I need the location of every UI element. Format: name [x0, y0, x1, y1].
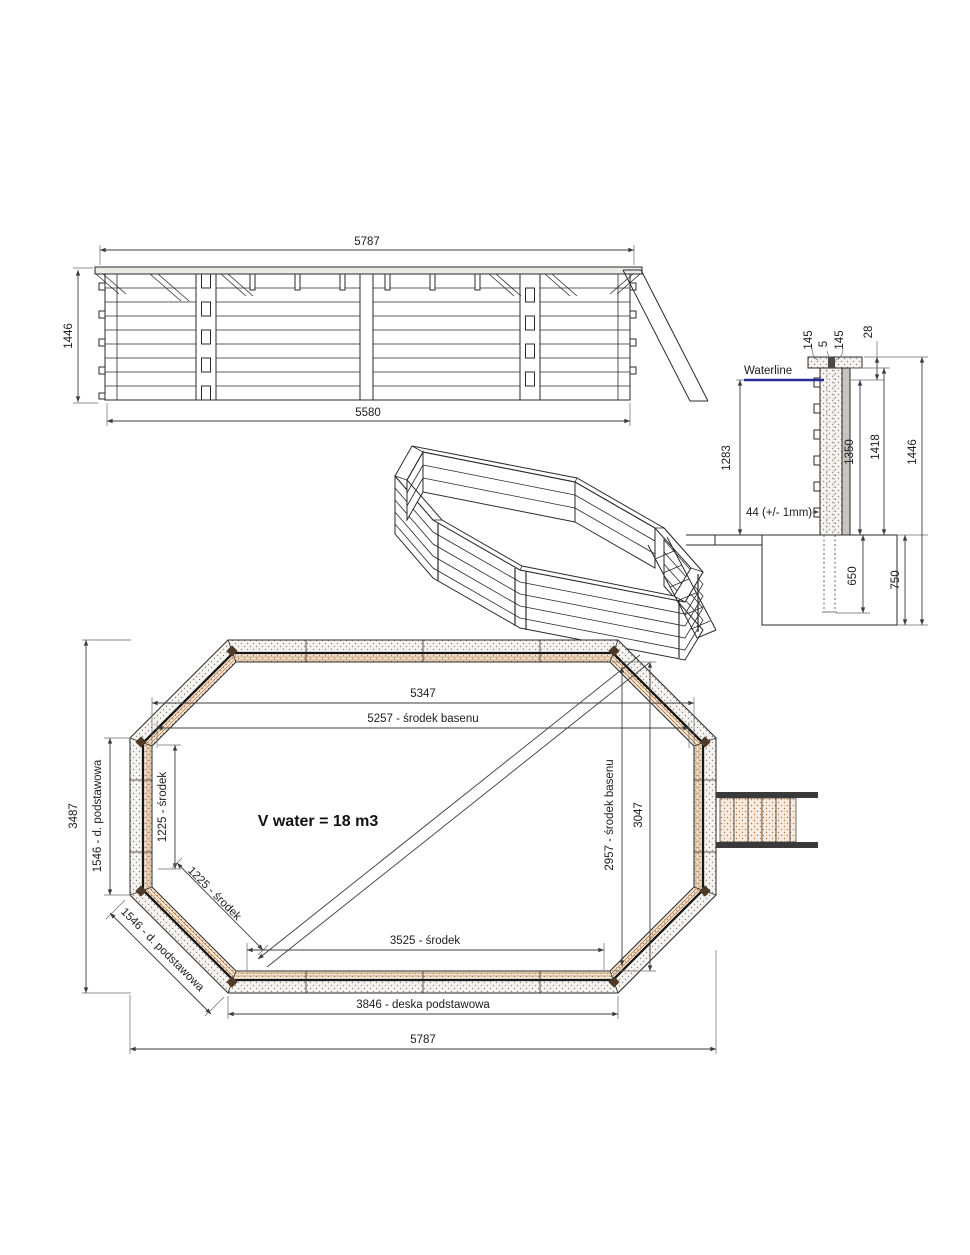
plan-view: V water = 18 m3 5347 5257 - środek basen…: [68, 640, 818, 1054]
dim-5347: 5347: [410, 688, 436, 700]
plan-ladder: [716, 792, 818, 848]
dim-2957: 2957 - środek basenu: [604, 759, 616, 870]
perspective-view: [395, 446, 716, 660]
dim-3487: 3487: [68, 803, 80, 829]
elevation-view: 5787 1446 5580: [63, 236, 708, 426]
elevation-coping: [95, 267, 642, 274]
dim-1418: 1418: [870, 434, 882, 460]
section-view: Waterline 145 5 145 28 1350 1418: [686, 326, 928, 625]
section-coping-bolt: [828, 357, 835, 368]
plan-wall-band: [143, 653, 703, 980]
elevation-dim-top: 5787: [354, 236, 380, 248]
dim-1350: 1350: [844, 439, 856, 465]
cap-dim-right: 145: [834, 330, 846, 349]
dim-3846: 3846 - deska podstawowa: [356, 999, 490, 1011]
dim-5257: 5257 - środek basenu: [367, 713, 478, 725]
dim-650: 650: [847, 566, 859, 585]
volume-label: V water = 18 m3: [258, 813, 379, 830]
dim-1446: 1446: [907, 439, 919, 465]
section-ground: [686, 535, 897, 625]
elevation-dim-bottom: 5580: [355, 407, 381, 419]
dim-3525: 3525 - środek: [390, 935, 461, 947]
dim-1283: 1283: [721, 445, 733, 471]
dim-3047: 3047: [633, 802, 645, 828]
elevation-dim-left: 1446: [63, 323, 75, 349]
dim-1546-left: 1546 - d. podstawowa: [92, 759, 104, 872]
dim-1225-left: 1225 - środek: [157, 772, 169, 843]
dim-5787-plan: 5787: [410, 1034, 436, 1046]
cap-dim-left: 145: [803, 330, 815, 349]
plan-diagonal-lines: [258, 655, 649, 967]
dim-1225-corner: 1225 - środek: [185, 865, 243, 923]
dim-750: 750: [890, 570, 902, 589]
waterline-label: Waterline: [744, 365, 792, 377]
section-cap-dims: 145 5 145: [803, 330, 846, 360]
dim-board-thickness: 44 (+/- 1mm): [746, 507, 812, 519]
dim-28: 28: [863, 326, 875, 339]
technical-drawing-page: 5787 1446 5580: [0, 0, 970, 1255]
cap-dim-gap: 5: [818, 341, 830, 347]
pool-drawing-svg: 5787 1446 5580: [0, 0, 970, 1255]
